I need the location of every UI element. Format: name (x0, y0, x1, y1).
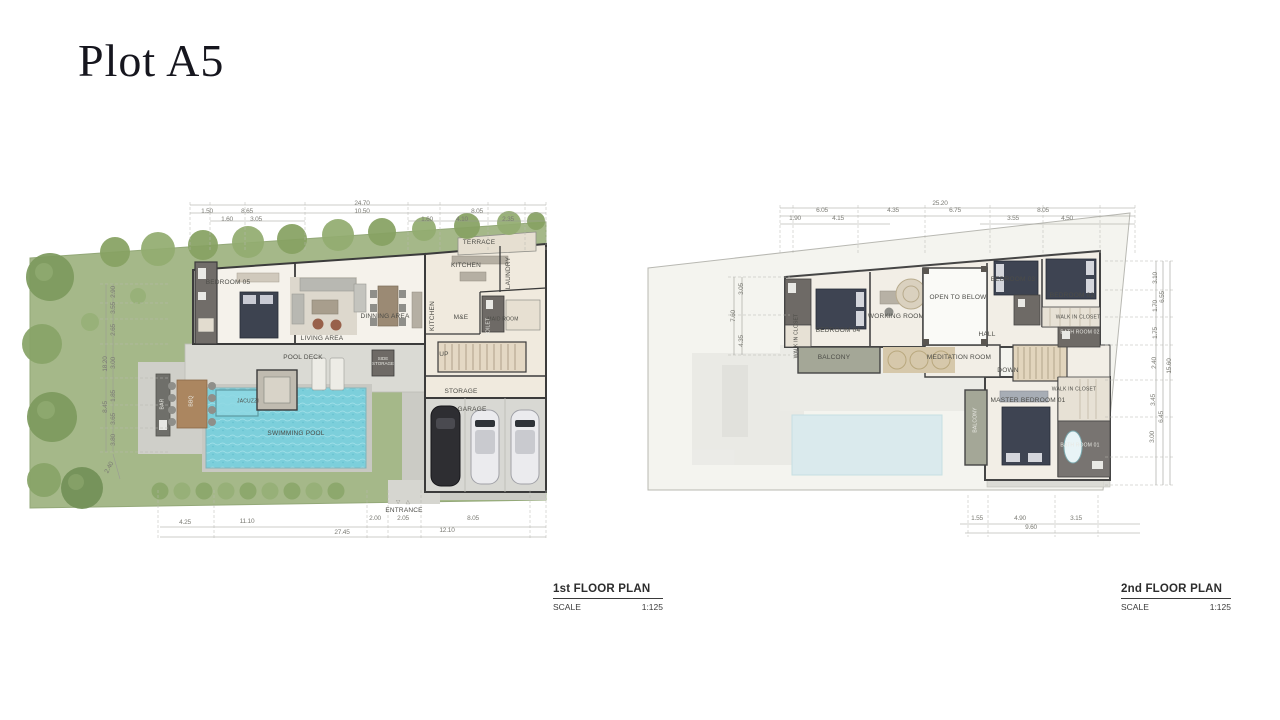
dim-second-top3-0: 1.90 (789, 216, 801, 223)
dim-first-top3-1: 3.05 (250, 217, 262, 224)
first-floor-plan-title: 1st FLOOR PLAN (553, 583, 663, 599)
room-label-jacuzzi: JACUZZI (237, 400, 259, 405)
dim-first-left-5: 3.65 (111, 413, 118, 425)
room-label-wic04: WALK IN CLOSET (795, 314, 800, 359)
first-floor-drawing (20, 192, 565, 567)
dim-first-top2-2: 10.50 (354, 209, 369, 216)
room-label-bath01: BATH ROOM 01 (1060, 444, 1099, 449)
dim-first-left-total-upper: 18.20 (103, 356, 110, 371)
dim-second-top3-1: 4.15 (832, 216, 844, 223)
dim-second-right-0: 3.10 (1153, 272, 1160, 284)
dim-first-left-4: 1.85 (111, 390, 118, 402)
first-scale-label: SCALE (553, 602, 581, 612)
room-label-garage: GARAGE (457, 407, 486, 414)
room-label-working-room: WORKING ROOM (868, 314, 924, 321)
dim-second-bottom-total: 9.60 (1025, 525, 1037, 532)
dim-second-right-4: 3.45 (1151, 394, 1158, 406)
dim-first-bottom1-3: 2.05 (397, 516, 409, 523)
dim-second-left-1: 4.35 (739, 335, 746, 347)
room-label-open-to-below: OPEN TO BELOW (930, 295, 987, 302)
dim-first-bottom1-0: 4.25 (179, 520, 191, 527)
dim-first-top3-0: 1.60 (221, 217, 233, 224)
room-label-me: M&E (454, 315, 469, 322)
room-label-bedroom05: BEDROOM 05 (206, 280, 251, 287)
room-label-bedroom04: BEDROOM 04 (816, 328, 861, 335)
room-label-bath02: BATH ROOM 02 (1060, 331, 1099, 336)
dim-second-bottom1-1: 4.90 (1014, 516, 1026, 523)
page-title: Plot A5 (78, 34, 224, 87)
dim-first-bottom-sub: 12.10 (439, 528, 454, 535)
dim-first-left-6: 3.80 (111, 434, 118, 446)
dim-first-top3-3: 4.10 (456, 217, 468, 224)
dim-first-top2-0: 1.50 (201, 209, 213, 216)
room-label-master-bedroom01: MASTER BEDROOM 01 (991, 398, 1066, 405)
dim-second-top-total: 25.20 (932, 201, 947, 208)
dim-first-left-0: 2.90 (111, 286, 118, 298)
room-label-toilet: TOILET (487, 318, 492, 337)
dim-second-top3-3: 4.50 (1061, 216, 1073, 223)
dim-first-bottom1-4: 8.05 (467, 516, 479, 523)
room-label-storage: STORAGE (444, 389, 477, 396)
dim-second-right-total: 15.60 (1167, 358, 1174, 373)
second-floor-plan-title: 2nd FLOOR PLAN (1121, 583, 1231, 599)
second-scale-value: 1:125 (1210, 602, 1231, 612)
room-label-maid-room: MAID ROOM (487, 318, 518, 323)
room-label-bar: BAR (161, 399, 166, 410)
room-label-stairs-up: UP (439, 352, 448, 359)
second-scale-label: SCALE (1121, 602, 1149, 612)
first-scale-value: 1:125 (642, 602, 663, 612)
room-label-meditation-room: MEDITATION ROOM (927, 355, 991, 362)
room-label-living-area: LIVING AREA (301, 336, 344, 343)
dim-second-bottom1-0: 1.55 (971, 516, 983, 523)
garage-cars (431, 406, 539, 486)
room-label-laundry: LAUNDRY (506, 257, 513, 289)
entrance-marker-icon: ▽ △ (396, 500, 412, 506)
dim-first-left-1: 3.55 (111, 302, 118, 314)
dim-second-right-5: 3.00 (1150, 431, 1157, 443)
dim-second-right-3: 2.40 (1152, 357, 1159, 369)
dim-first-top2-1: 8.65 (241, 209, 253, 216)
room-label-bedroom02: BEDROOM 02 (1050, 293, 1095, 300)
plan-sheet: Plot A5 (0, 0, 1280, 720)
room-label-swimming-pool: SWIMMING POOL (267, 431, 324, 438)
dim-second-top2-2: 6.75 (949, 208, 961, 215)
dim-first-bottom1-2: 2.00 (369, 516, 381, 523)
dim-first-left-2: 2.65 (111, 324, 118, 336)
dim-second-top2-0: 6.05 (816, 208, 828, 215)
dim-second-top3-2: 3.55 (1007, 216, 1019, 223)
room-label-balcony-left: BALCONY (818, 355, 850, 362)
second-floor-drawing (630, 195, 1190, 545)
dim-second-top2-1: 4.35 (887, 208, 899, 215)
room-label-stairs-down: DOWN (997, 368, 1018, 375)
dim-second-right-mid-0: 6.55 (1160, 291, 1167, 303)
room-label-bedroom03: BEDROOM 03 (991, 277, 1036, 284)
dim-second-top2-3: 8.05 (1037, 208, 1049, 215)
dim-second-bottom1-2: 3.15 (1070, 516, 1082, 523)
first-floor-title-block: 1st FLOOR PLAN SCALE 1:125 (553, 583, 663, 612)
second-floor-title-block: 2nd FLOOR PLAN SCALE 1:125 (1121, 583, 1231, 612)
room-label-kitchen: KITCHEN (451, 263, 481, 270)
room-label-wic01: WALK IN CLOSET (1052, 388, 1097, 393)
dim-first-top2-3: 8.05 (471, 209, 483, 216)
room-label-dinning-area: DINNING AREA (361, 314, 410, 321)
dim-second-right-mid-1: 6.45 (1159, 411, 1166, 423)
dim-first-top3-2: 1.60 (421, 217, 433, 224)
dim-second-left-0: 3.05 (739, 283, 746, 295)
room-label-kitchen-back: KITCHEN (430, 301, 437, 331)
dim-first-bottom-total: 27.45 (334, 530, 349, 537)
room-label-terrace: TERRACE (463, 240, 495, 247)
dim-first-left-3: 3.00 (111, 357, 118, 369)
room-label-wic02: WALK IN CLOSET (1056, 316, 1101, 321)
room-label-bbq: BBQ (190, 395, 195, 406)
room-label-hall: HALL (978, 332, 995, 339)
dim-first-left-total-lower: 8.45 (103, 401, 110, 413)
dim-first-bottom1-1: 11.10 (240, 519, 255, 526)
room-label-pool-deck: POOL DECK (283, 355, 323, 362)
room-label-side-storage: SIDE STORAGE (371, 356, 395, 366)
dim-first-top3-4: 2.35 (502, 217, 514, 224)
dim-second-right-2: 1.75 (1153, 327, 1160, 339)
dim-second-left-total: 7.60 (731, 310, 738, 322)
room-label-entrance: ENTRANCE (385, 508, 422, 515)
dim-first-top-total: 24.70 (354, 201, 369, 208)
room-label-balcony-right: BALCONY (974, 407, 979, 432)
